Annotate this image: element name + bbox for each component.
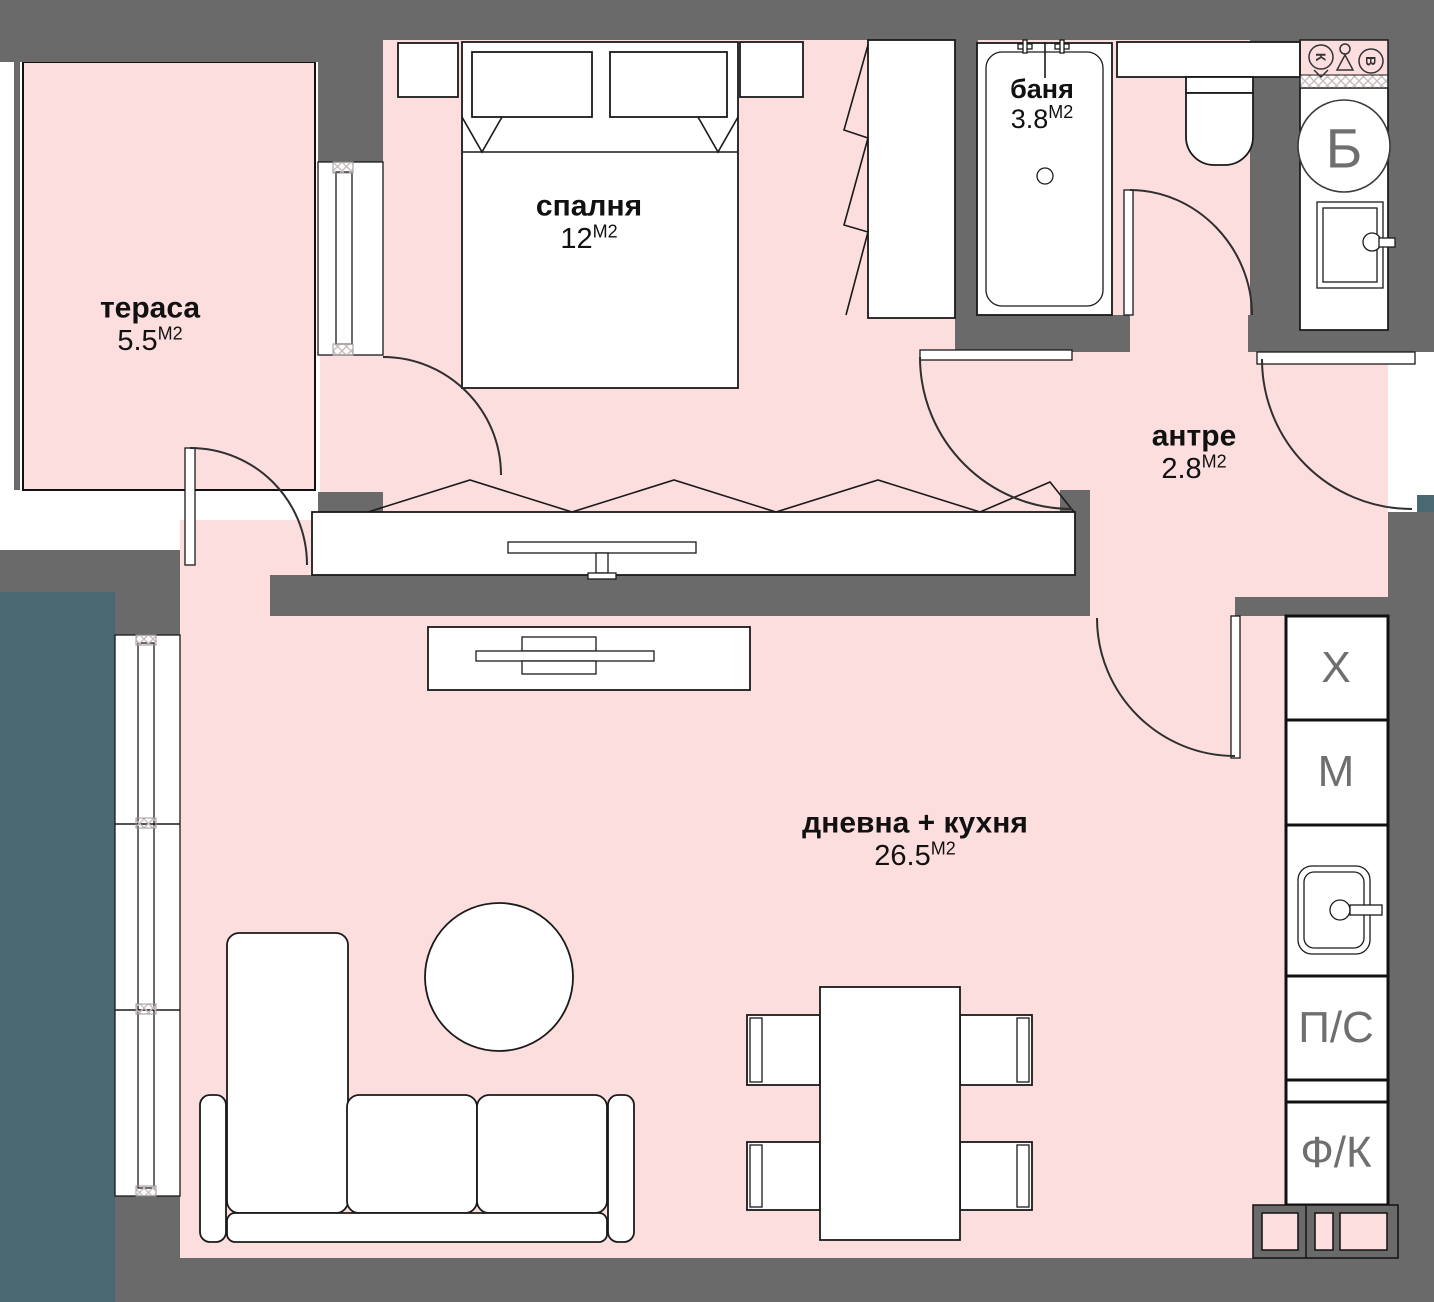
kitchen-unit-stove: П/С <box>1298 1003 1374 1053</box>
adjacent-exterior-band <box>0 592 115 1302</box>
tv-base <box>522 661 596 674</box>
bath-counter <box>1117 42 1300 77</box>
kitchen-unit-washer: М <box>1318 747 1355 797</box>
exterior-patch <box>1417 495 1434 512</box>
balcony-window <box>318 162 383 355</box>
sofa-seat <box>477 1095 607 1213</box>
nightstand-right <box>740 42 803 97</box>
pillow-left <box>472 52 592 117</box>
room-label-bathroom: баня 3.8М2 <box>1010 75 1074 135</box>
shaft-blocks <box>1253 1205 1398 1258</box>
sewer-riser-letter: К <box>1313 53 1329 62</box>
floor-plan: тераса 5.5М2 спалня 12М2 баня 3.8М2 антр… <box>0 0 1434 1302</box>
wall-segment <box>318 40 383 162</box>
utility-room <box>1298 40 1395 330</box>
wall-segment <box>115 1196 180 1302</box>
wall-segment <box>1250 40 1300 315</box>
wall-segment <box>115 592 180 635</box>
wall-segment <box>0 0 320 62</box>
coffee-table <box>425 903 573 1051</box>
boiler-letter: Б <box>1326 116 1363 181</box>
wall-segment <box>1235 597 1388 616</box>
tub-drain <box>1037 168 1053 184</box>
tv-cabinet <box>428 627 750 690</box>
sofa-chaise <box>227 933 348 1213</box>
sofa-arm-left <box>200 1095 226 1242</box>
wall-segment <box>955 315 1130 352</box>
wall-segment <box>955 40 978 318</box>
wall-segment <box>0 550 180 592</box>
sofa-arm-right <box>608 1095 634 1242</box>
pillow-right <box>610 52 727 117</box>
terrace-railing <box>14 62 20 490</box>
terrace-floor <box>23 62 315 490</box>
utility-sink <box>1317 202 1395 288</box>
wall-segment <box>180 1258 1434 1302</box>
wall-segment <box>270 575 1090 616</box>
wall-segment <box>1388 30 1434 345</box>
tv-mount <box>522 637 596 651</box>
kitchen-sink <box>1298 866 1382 954</box>
kitchen-unit-fridge: Х <box>1321 643 1350 693</box>
water-riser-letter: В <box>1363 56 1379 66</box>
nightstand-left <box>398 43 458 97</box>
room-label-bedroom: спалня 12М2 <box>536 190 642 255</box>
room-label-hallway: антре 2.8М2 <box>1152 420 1237 485</box>
sofa-base <box>227 1213 607 1242</box>
tv-living <box>476 651 654 661</box>
hatch-strip <box>1300 75 1388 88</box>
dining-table <box>820 987 960 1240</box>
kitchen-column <box>1286 616 1388 1205</box>
floor-plan-svg <box>0 0 1434 1302</box>
room-label-living: дневна + кухня 26.5М2 <box>802 807 1028 872</box>
sofa-seat <box>347 1095 477 1213</box>
toilet <box>1186 77 1253 165</box>
wall-segment <box>1388 512 1434 1302</box>
kitchen-unit-oven: Ф/К <box>1300 1128 1371 1178</box>
living-window <box>115 635 180 1196</box>
room-label-terrace: тераса 5.5М2 <box>100 292 200 357</box>
